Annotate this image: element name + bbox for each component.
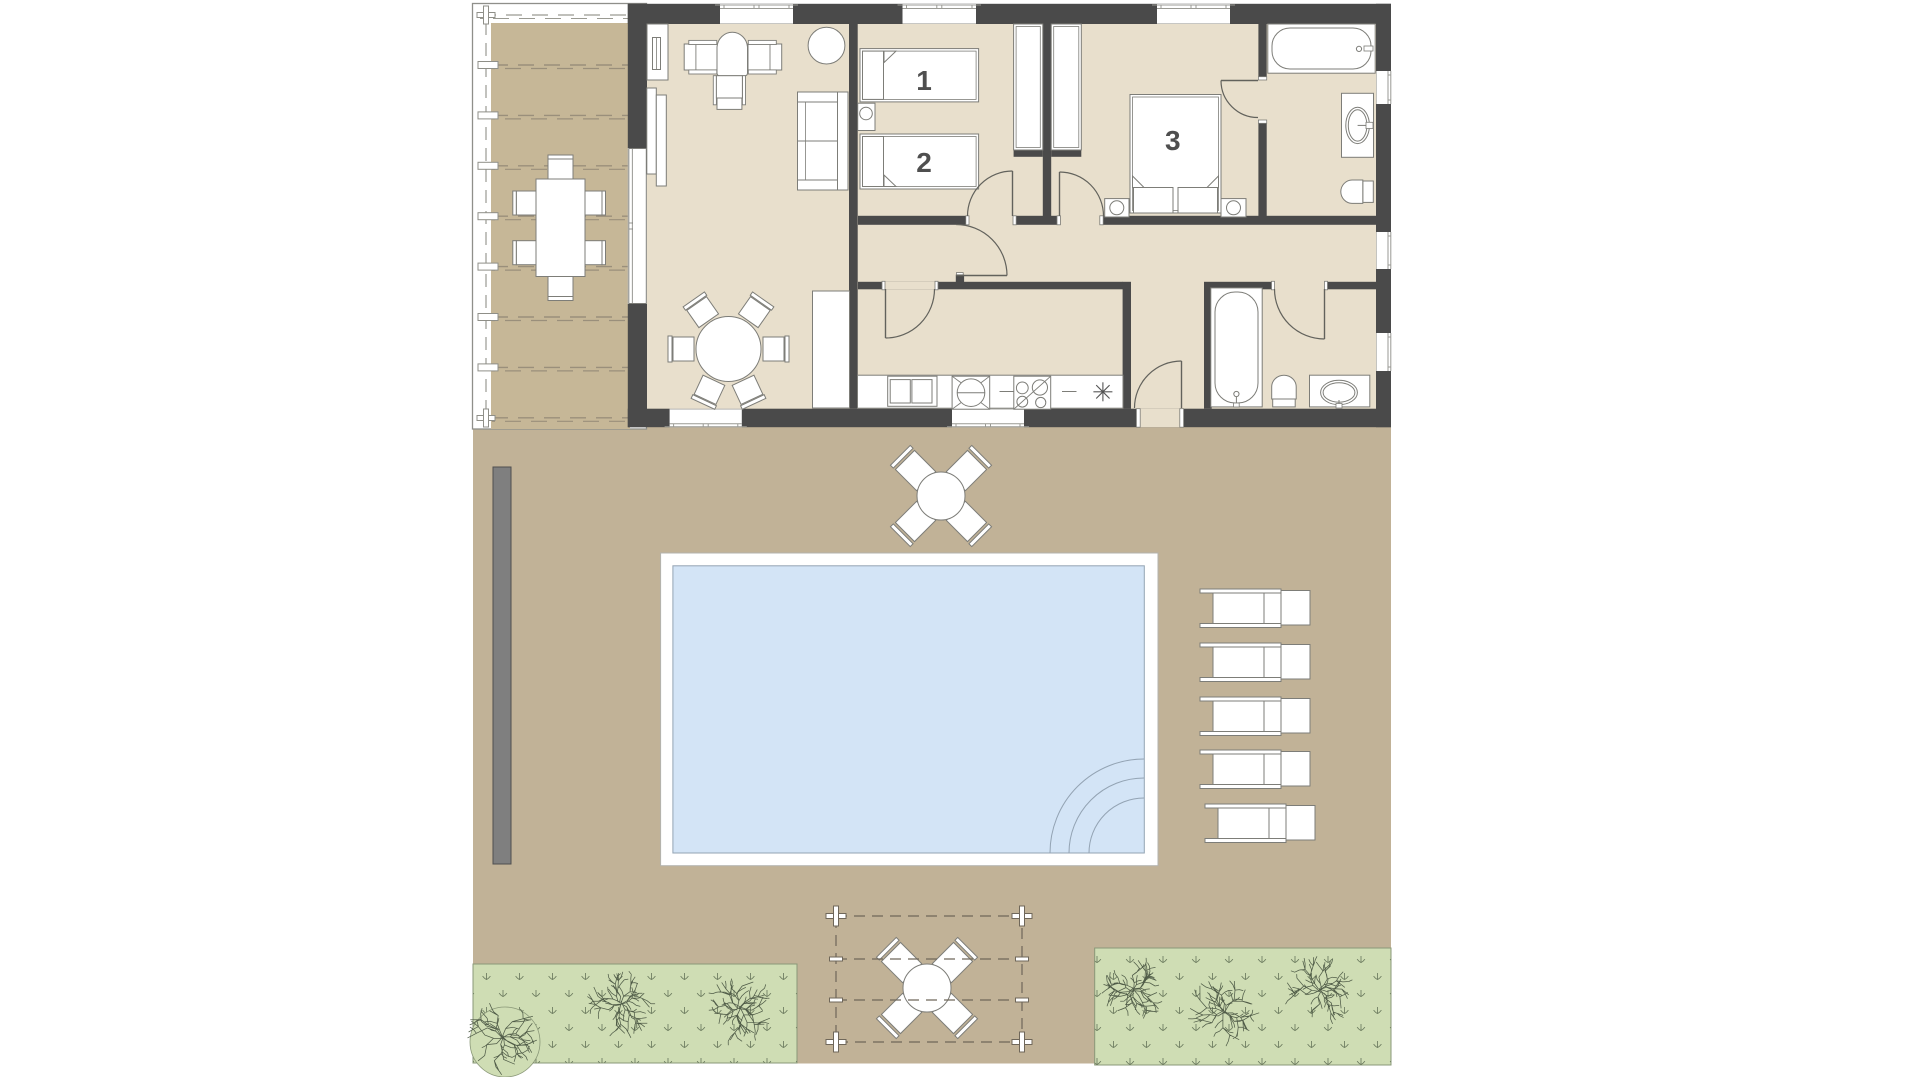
svg-text:3: 3 <box>1165 125 1181 156</box>
svg-text:1: 1 <box>916 65 932 96</box>
svg-text:2: 2 <box>916 147 932 178</box>
